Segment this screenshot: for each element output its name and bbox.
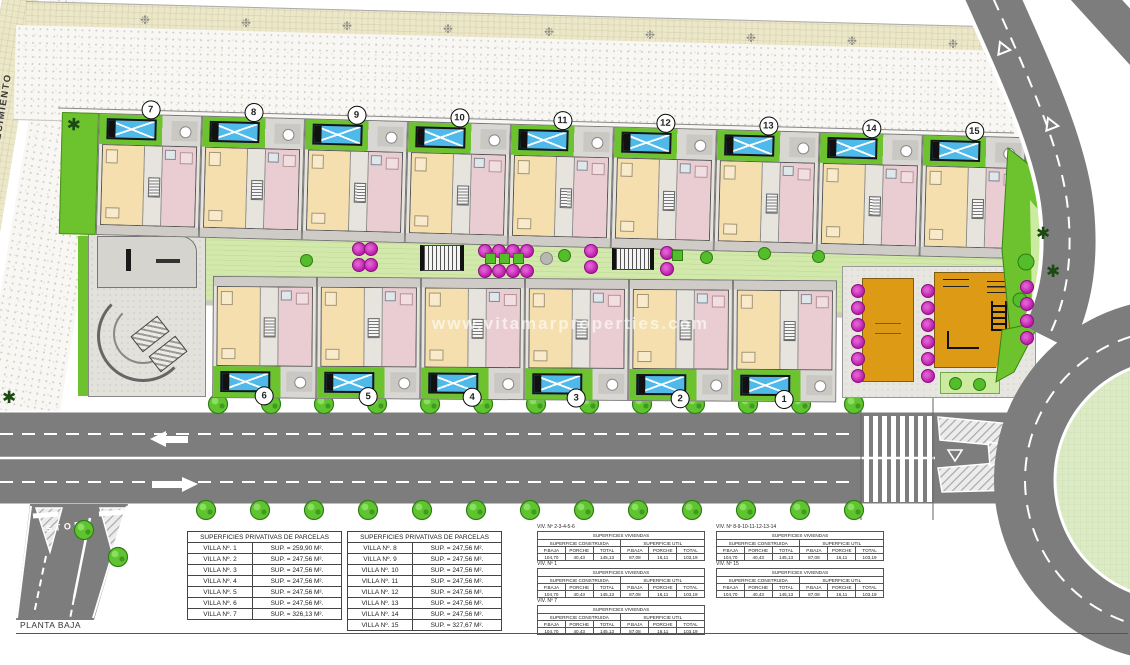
street-tree [75, 521, 94, 540]
terrace-table [694, 140, 706, 152]
floor-plan [924, 166, 1021, 249]
table-row: VILLA Nº. 8SUP. = 247,56 M². [348, 543, 502, 554]
furniture [296, 293, 309, 305]
surface-value: 104,70 [538, 554, 566, 561]
col-label: TOTAL [593, 584, 621, 591]
shrub-icon: ❉ [746, 31, 756, 45]
table-row: VILLA Nº. 13SUP. = 247,56 M². [348, 598, 502, 609]
furniture [429, 293, 441, 307]
street-tree [737, 501, 756, 520]
vivienda-surface-table: SUPERFICIES VIVIENDAS SUPERFICIE CONSTRU… [537, 605, 705, 635]
street-tree [845, 501, 864, 520]
ornamental-tree [584, 244, 598, 258]
floor-plan [216, 286, 313, 367]
living-area [410, 153, 454, 233]
furniture [620, 221, 634, 232]
street-tree [359, 501, 378, 520]
shrub-icon: ❉ [645, 28, 655, 42]
street-tree [521, 501, 540, 520]
stop-bar [99, 512, 124, 514]
group-title: VIV. Nº 2-3-4-5-6 [537, 524, 705, 530]
ornamental-tree [851, 301, 865, 315]
furniture [816, 296, 829, 308]
bench-icon [943, 279, 969, 287]
surface-value: SUP. = 247,56 M². [413, 576, 502, 587]
furniture [400, 293, 413, 305]
villa-unit: 13 [714, 129, 820, 254]
surface-value: SUP. = 247,56 M². [413, 565, 502, 576]
bush [758, 247, 771, 260]
street-tree [305, 501, 324, 520]
swimming-pool [724, 134, 775, 156]
table-header: SUPERFICIES VIVIENDAS [538, 569, 705, 577]
vivienda-surface-group: VIV. Nº 2-3-4-5-6 SUPERFICIES VIVIENDAS … [537, 524, 705, 561]
ornamental-tree [851, 284, 865, 298]
stairs-structure [612, 248, 654, 270]
access-ramp-complex [88, 231, 206, 397]
col-label: PORCHE [828, 547, 856, 554]
group-title: VIV. Nº 8-9-10-11-12-13-14 [716, 524, 884, 530]
parcel-surface-table: SUPERFICIES PRIVATIVAS DE PARCELASVILLA … [347, 531, 502, 631]
villa-unit: 11 [508, 124, 614, 249]
ornamental-tree [921, 301, 935, 315]
stair-core [761, 162, 781, 241]
villa-unit: 3 [524, 278, 629, 401]
bathroom [696, 293, 707, 303]
crosswalk-stripe [864, 416, 869, 502]
surface-value: SUP. = 247,56 M². [253, 598, 342, 609]
terrace-pad [789, 137, 816, 158]
conifer-tree-icon: ✱ [66, 115, 81, 135]
gravel-bush [540, 252, 553, 265]
living-area [822, 164, 866, 244]
surface-value: SUP. = 247,56 M². [413, 609, 502, 620]
stair-core [143, 146, 163, 225]
terrace-pad [995, 142, 1022, 163]
surface-value: 145,13 [593, 554, 621, 561]
bush [812, 250, 825, 263]
stair-core [864, 165, 884, 244]
street-tree [413, 501, 432, 520]
conifer-tree-icon: ✱ [1036, 224, 1050, 244]
furniture [741, 295, 753, 309]
stairs-icon [456, 185, 469, 205]
pool-step [314, 126, 321, 143]
surface-value: 145,13 [593, 591, 621, 598]
surface-value: 16,11 [828, 554, 856, 561]
villa-label: VILLA Nº. 2 [188, 554, 253, 565]
furniture [221, 348, 235, 359]
terrace-table [488, 134, 500, 146]
site-plan: BANDA DE PROTECCION TUBERIA ABASTECIMIEN… [0, 0, 1130, 665]
street-tree [683, 501, 702, 520]
bathroom [384, 291, 395, 301]
walkway [422, 278, 524, 288]
terrace-table [591, 137, 603, 149]
constructed-label: SUPERFICIE CONSTRUIDA [717, 577, 800, 584]
pool-step [222, 373, 229, 390]
play-area [862, 278, 914, 382]
living-area [204, 148, 248, 228]
ornamental-tree [506, 264, 520, 278]
villa-unit: 7 [96, 113, 202, 238]
col-label: P.BAJA [538, 584, 566, 591]
villa-label: VILLA Nº. 11 [348, 576, 413, 587]
stair-core [349, 152, 369, 231]
furniture [414, 215, 428, 226]
street-tree [791, 501, 810, 520]
furniture [386, 157, 399, 169]
surface-value: 87,08 [800, 554, 828, 561]
villa-unit: 12 [611, 126, 717, 251]
swimming-pool [827, 137, 878, 159]
walkway [303, 230, 404, 242]
villa-unit: 6 [212, 276, 317, 399]
villa-number-badge: 5 [359, 387, 378, 406]
furniture [180, 152, 193, 164]
villa-label: VILLA Nº. 5 [188, 587, 253, 598]
terrace-pad [583, 132, 610, 153]
crosswalk-stripe [882, 416, 887, 502]
col-label: TOTAL [856, 547, 884, 554]
useful-label: SUPERFICIE UTIL [800, 540, 884, 547]
floor-plan [409, 152, 506, 235]
col-label: TOTAL [856, 584, 884, 591]
useful-label: SUPERFICIE UTIL [800, 577, 884, 584]
floor-plan [718, 160, 815, 243]
shrub-icon: ❉ [140, 13, 150, 27]
surface-value: 87,08 [621, 554, 649, 561]
col-label: P.BAJA [621, 584, 649, 591]
villa-row-top: ✱ 7 8 9 10 [59, 112, 1044, 260]
shrub-icon: ❉ [544, 25, 554, 39]
villa-number-badge: 1 [775, 390, 794, 409]
crosswalk-stripe [873, 416, 878, 502]
crosswalk-stripe [900, 416, 905, 502]
bedroom-area [676, 160, 711, 240]
stair-core [364, 288, 382, 366]
surface-value: 87,08 [621, 591, 649, 598]
pool-step [638, 376, 645, 393]
furniture [533, 350, 547, 361]
table-row: VILLA Nº. 9SUP. = 247,56 M². [348, 554, 502, 565]
swimming-pool [209, 121, 260, 143]
bathroom [488, 292, 499, 302]
ornamental-tree [921, 335, 935, 349]
ornamental-tree [364, 258, 378, 272]
surface-value: 103,19 [677, 591, 705, 598]
pool-step [520, 131, 527, 148]
villa-label: VILLA Nº. 4 [188, 576, 253, 587]
service-equipment [156, 259, 180, 263]
bedroom-area [798, 291, 832, 369]
stairs-icon [147, 177, 160, 197]
surface-value: 40,43 [565, 554, 593, 561]
furniture [312, 155, 324, 169]
villa-label: VILLA Nº. 13 [348, 598, 413, 609]
table-row: VILLA Nº. 14SUP. = 247,56 M². [348, 609, 502, 620]
furniture [221, 291, 233, 305]
vivienda-surface-table: SUPERFICIES VIVIENDAS SUPERFICIE CONSTRU… [537, 568, 705, 598]
col-label: PORCHE [565, 584, 593, 591]
crosswalk-stripe [891, 416, 896, 502]
bedroom-area [161, 147, 196, 227]
terrace-table [282, 129, 294, 141]
stair-core [246, 149, 266, 228]
furniture [929, 229, 943, 240]
furniture [209, 152, 221, 166]
title-block-line [16, 633, 1128, 634]
constructed-label: SUPERFICIE CONSTRUIDA [717, 540, 800, 547]
parcel-surface-table: SUPERFICIES PRIVATIVAS DE PARCELASVILLA … [187, 531, 342, 620]
furniture [723, 165, 735, 179]
terrace-table [398, 377, 410, 389]
table-title: SUPERFICIES PRIVATIVAS DE PARCELAS [188, 532, 342, 543]
bedroom-area [779, 163, 814, 243]
bedroom-area [882, 166, 917, 246]
villa-number-badge: 2 [671, 389, 690, 408]
furniture [429, 350, 443, 361]
surface-value: SUP. = 247,56 M². [253, 576, 342, 587]
furniture [325, 292, 337, 306]
swimming-pool [621, 132, 672, 154]
bush [973, 378, 986, 391]
surface-value: 40,43 [744, 591, 772, 598]
table-row: VILLA Nº. 15SUP. = 327,67 M². [348, 620, 502, 631]
villa-unit: 8 [199, 116, 305, 241]
furniture [283, 155, 296, 167]
surface-value: 145,13 [772, 554, 800, 561]
terrace-pad [286, 372, 312, 392]
walkway [526, 279, 628, 289]
villa-label: VILLA Nº. 10 [348, 565, 413, 576]
surface-value: 103,19 [856, 554, 884, 561]
surface-value: 145,13 [772, 591, 800, 598]
bathroom [165, 150, 176, 160]
stairs-icon [868, 196, 881, 216]
furniture [826, 226, 840, 237]
hedge-square [672, 250, 683, 261]
villa-label: VILLA Nº. 3 [188, 565, 253, 576]
surface-value: 40,43 [744, 554, 772, 561]
ornamental-tree [851, 318, 865, 332]
stairs-structure [420, 245, 464, 271]
ornamental-tree [921, 369, 935, 383]
furniture [106, 149, 118, 163]
col-label: TOTAL [677, 584, 705, 591]
col-label: TOTAL [677, 621, 705, 628]
bush [558, 249, 571, 262]
furniture [415, 157, 427, 171]
furniture [517, 218, 531, 229]
service-platform [97, 236, 197, 288]
bathroom [577, 160, 588, 170]
col-label: P.BAJA [717, 584, 745, 591]
surface-value: SUP. = 327,67 M². [413, 620, 502, 631]
floor-plan [512, 155, 609, 238]
surface-value: SUP. = 247,56 M². [253, 587, 342, 598]
villa-label: VILLA Nº. 1 [188, 543, 253, 554]
vivienda-surface-table: SUPERFICIES VIVIENDAS SUPERFICIE CONSTRU… [716, 568, 884, 598]
traffic-island [938, 462, 1016, 492]
furniture [620, 163, 632, 177]
walkway [734, 281, 836, 291]
bathroom [474, 158, 485, 168]
walkway [214, 277, 316, 287]
table-header: SUPERFICIES VIVIENDAS [538, 606, 705, 614]
bush [949, 377, 962, 390]
furniture [105, 207, 119, 218]
furniture [929, 171, 941, 185]
climbing-frame-icon [991, 301, 1007, 331]
bedroom-area [985, 168, 1020, 248]
stop-bar [33, 514, 58, 516]
col-label: P.BAJA [800, 547, 828, 554]
ornamental-tree [1020, 314, 1034, 328]
hedge-square [499, 253, 510, 264]
furniture [504, 294, 517, 306]
villa-number-badge: 6 [255, 386, 274, 405]
surface-value: SUP. = 247,56 M². [413, 543, 502, 554]
villa-unit: 4 [420, 277, 525, 400]
ornamental-tree [492, 264, 506, 278]
lawn-patch [940, 372, 1000, 394]
furniture [1003, 174, 1016, 186]
ornamental-tree [921, 318, 935, 332]
table-row: VILLA Nº. 6SUP. = 247,56 M². [188, 598, 342, 609]
villa-unit: 15 [920, 135, 1026, 260]
surface-value: 40,43 [565, 591, 593, 598]
pool-step [326, 374, 333, 391]
furniture [208, 210, 222, 221]
table-row: VILLA Nº. 7SUP. = 326,13 M². [188, 609, 342, 620]
surface-value: SUP. = 326,13 M². [253, 609, 342, 620]
useful-label: SUPERFICIE UTIL [621, 540, 705, 547]
col-label: PORCHE [565, 621, 593, 628]
corner-garden: ✱ [59, 112, 99, 235]
surface-value: SUP. = 259,90 M². [253, 543, 342, 554]
col-label: PORCHE [565, 547, 593, 554]
street-tree [575, 501, 594, 520]
sheet-title: PLANTA BAJA [20, 620, 81, 630]
terrace-table [385, 131, 397, 143]
pergola-icon [987, 281, 1011, 293]
surface-value: 104,70 [717, 554, 745, 561]
conifer-tree-icon: ✱ [1046, 262, 1060, 282]
villa-row-bottom: 6 5 4 3 2 [212, 276, 837, 402]
pool-step [932, 142, 939, 159]
furniture [637, 294, 649, 308]
walkway [406, 233, 507, 245]
terrace-table [1003, 148, 1015, 160]
vivienda-surface-table: SUPERFICIES VIVIENDAS SUPERFICIE CONSTRU… [716, 531, 884, 561]
living-area [307, 150, 351, 230]
col-label: PORCHE [649, 547, 677, 554]
terrace-pad [390, 372, 416, 392]
surface-value: SUP. = 247,56 M². [413, 598, 502, 609]
constructed-label: SUPERFICIE CONSTRUIDA [538, 614, 621, 621]
ornamental-tree [921, 284, 935, 298]
street-tree [109, 548, 128, 567]
floor-plan [306, 149, 403, 232]
walkway [818, 244, 919, 256]
terrace-pad [702, 374, 728, 394]
shrub-icon: ❉ [241, 16, 251, 30]
surface-value: 16,11 [649, 591, 677, 598]
ornamental-tree [851, 335, 865, 349]
stair-core [967, 168, 987, 247]
walkway [921, 247, 1022, 259]
col-label: PORCHE [828, 584, 856, 591]
street-tree [197, 501, 216, 520]
service-equipment [126, 249, 131, 271]
surface-value: 87,08 [800, 591, 828, 598]
col-label: PORCHE [744, 584, 772, 591]
ornamental-tree [584, 260, 598, 274]
pool-step [829, 139, 836, 156]
surface-value: SUP. = 247,56 M². [253, 565, 342, 576]
living-area [321, 288, 364, 366]
crosswalk-stripe [909, 416, 914, 502]
floor-plan [100, 144, 197, 227]
floor-plan [821, 163, 918, 246]
shrub-icon: ❉ [342, 19, 352, 33]
surface-value: 104,70 [538, 591, 566, 598]
terrace-table [797, 142, 809, 154]
swimming-pool [518, 129, 569, 151]
terrace-table [710, 379, 722, 391]
bathroom [680, 163, 691, 173]
green-edge [78, 236, 88, 396]
villa-unit: 9 [302, 118, 408, 243]
constructed-label: SUPERFICIE CONSTRUIDA [538, 577, 621, 584]
villa-label: VILLA Nº. 15 [348, 620, 413, 631]
bush [700, 251, 713, 264]
table-row: VILLA Nº. 2SUP. = 247,56 M². [188, 554, 342, 565]
bathroom [371, 155, 382, 165]
villa-label: VILLA Nº. 7 [188, 609, 253, 620]
living-area [737, 291, 780, 369]
ornamental-tree [478, 264, 492, 278]
furniture [900, 171, 913, 183]
table-row: VILLA Nº. 11SUP. = 247,56 M². [348, 576, 502, 587]
stairs-icon [971, 198, 984, 218]
ornamental-tree [851, 352, 865, 366]
col-label: PORCHE [649, 621, 677, 628]
furniture [592, 163, 605, 175]
villa-label: VILLA Nº. 12 [348, 587, 413, 598]
table-header: SUPERFICIES VIVIENDAS [538, 532, 705, 540]
furniture [325, 349, 339, 360]
vivienda-surface-group: VIV. Nº 15 SUPERFICIES VIVIENDAS SUPERFI… [716, 561, 884, 598]
living-area [616, 159, 660, 239]
furniture [695, 166, 708, 178]
villa-label: VILLA Nº. 9 [348, 554, 413, 565]
terrace-table [294, 377, 306, 389]
walkway [630, 280, 732, 290]
furniture [712, 295, 725, 307]
villa-label: VILLA Nº. 8 [348, 543, 413, 554]
terrace-pad [480, 129, 507, 150]
surface-value: 104,70 [717, 591, 745, 598]
col-label: TOTAL [593, 621, 621, 628]
surface-value: SUP. = 247,56 M². [413, 554, 502, 565]
col-label: TOTAL [677, 547, 705, 554]
shrub-icon: ❉ [948, 37, 958, 51]
furniture [741, 352, 755, 363]
col-label: TOTAL [772, 584, 800, 591]
table-title: SUPERFICIES PRIVATIVAS DE PARCELAS [348, 532, 502, 543]
